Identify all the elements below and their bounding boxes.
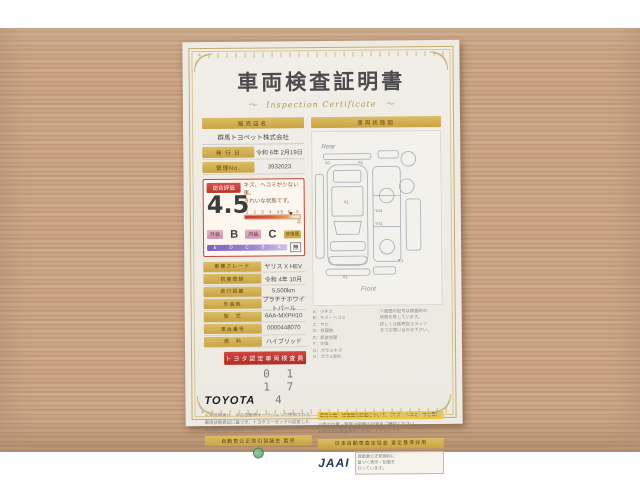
jaai-logo: JAAI [318,456,349,470]
spec-row-fuel: 燃 料 ハイブリッド [204,335,306,348]
right-column: 車両状態図 [311,116,443,407]
overall-rating-score: 4.5 [207,193,241,218]
certificate-number-stamp: 0 1 1 7 4 [255,368,307,407]
green-seal-icon [253,448,264,459]
rating-marker-icon [288,212,292,215]
legend-symbols: A：小キズ B：キズ・ヘコミ C：サビ D：修理跡 E：板金修理 F：交換 G：… [313,309,376,361]
corner-flourish-icon [430,392,452,414]
spec-value: 0000448070 [262,325,306,331]
certificate-subtitle: ～ Inspection Certificate ～ [198,98,445,111]
damage-marker: A1 [325,160,331,165]
inspector-banner: トヨタ認定車両検査員 [224,352,306,366]
spec-value: 5,500km [261,288,305,294]
wood-table-background: 車両検査証明書 ～ Inspection Certificate ～ 販売店名 … [0,28,640,452]
grade-scale-letter: D [223,245,239,251]
spec-row-model: 型 式 6AA-MXPH10 [204,310,306,323]
exterior-label: 外装 [207,230,223,239]
rating-scale-bar [244,214,301,219]
spec-label: 外装色 [204,299,262,310]
spec-label: 燃 料 [204,336,262,347]
spec-value: ハイブリッド [262,336,306,345]
manage-number-row: 管理No. 3932023 [202,161,304,175]
certificate-title: 車両検査証明書 [198,65,445,97]
damage-marker: Y41 [375,208,383,213]
spec-row-grade: 車種グレード ヤリス X HEV [203,260,305,273]
repair-history-value: 無 [290,242,301,252]
diagram-legend: A：小キズ B：キズ・ヘコミ C：サビ D：修理跡 E：板金修理 F：交換 G：… [313,308,443,361]
damage-marker: E1 [398,258,404,263]
legend-notes: ※図面の記号は検査時の 状態を表しています。 詳しくは販売店スタッフ までお問い… [380,308,443,360]
diagram-header-label: 車両状態図 [311,116,441,128]
exterior-grade: B [225,229,243,241]
rating-unit: 点 [244,219,301,225]
grade-scale-bar: E D C B A [207,244,287,251]
damage-marker: A1 [344,199,350,204]
spec-value: プラチナホワイトパール [262,294,306,312]
grade-scale-letter: C [239,244,255,250]
grade-scale-letter: A [271,244,287,250]
grade-row: 外装 B 内装 C 修復歴 [207,228,301,241]
spec-label: 型 式 [204,311,262,322]
damage-marker: A1 [358,160,364,165]
spec-label: 車台番号 [204,324,262,335]
overall-rating-box: 総合評価 4.5 キズ、ヘコミが少ない車。 きれいな状態です。 1 2 3 4 [203,178,306,257]
corner-flourish-icon [427,50,449,72]
dealer-header-label: 販売店名 [202,117,304,129]
vehicle-condition-diagram: Rear Front A1 A1 A1 Y41 Y41 A1 E1 [311,130,442,306]
footer-side-note: 自動車公正競規約に 基づく表示・記載を 行っています。 [354,451,444,475]
inspection-certificate-document: 車両検査証明書 ～ Inspection Certificate ～ 販売店名 … [182,40,462,426]
manage-number-label: 管理No. [202,162,254,173]
footer-right-note: ※傷の位置・程度は図面の記号をご確認ください。 ※評価点は検査時点の状態によるも… [318,421,444,435]
manage-number-value: 3932023 [254,164,304,170]
spec-row-color: 外装色 プラチナホワイトパール [204,298,306,311]
dealer-name: 群馬トヨペット株式会社 [202,131,304,145]
corner-flourish-icon [195,394,217,416]
spec-row-registration: 初度登録 令和 4年 10月 [203,273,305,286]
car-outline-drawing: Rear Front A1 A1 A1 Y41 Y41 A1 E1 [312,131,441,305]
left-column: 販売店名 群馬トヨペット株式会社 発 行 日 令和 6年 2月19日 管理No.… [202,117,307,407]
issue-date-row: 発 行 日 令和 6年 2月19日 [202,146,304,160]
corner-flourish-icon [192,52,214,74]
diagram-rear-label: Rear [321,143,336,150]
interior-label: 内装 [245,230,261,239]
fair-trade-council-bar: 自動車公正取引協議会 監修 [205,435,312,446]
spec-label: 車種グレード [203,261,261,272]
spec-label: 走行距離 [203,286,261,297]
issue-date-value: 令和 6年 2月19日 [254,147,304,156]
damage-marker: Y41 [375,221,383,226]
spec-row-chassis: 車台番号 0000448070 [204,323,306,336]
diagram-front-label: Front [361,286,376,293]
damage-marker: A1 [343,274,349,279]
grade-scale-letter: E [207,245,223,251]
repair-history-label: 修復歴 [284,230,302,238]
spec-value: 6AA-MXPH10 [262,313,306,319]
spec-value: 令和 4年 10月 [261,274,305,283]
grade-scale-row: E D C B A 無 [207,242,301,253]
jaai-standard-bar: 日本自動車査定協会 査定基準採用 [318,438,444,449]
footer-disclaimer: ※本証明書は、中古自動車オークションで使用される 車両状態表記に基づき、トヨタユ… [205,413,312,434]
rating-comment: キズ、ヘコミが少ない車。 きれいな状態です。 [244,182,301,206]
issue-date-label: 発 行 日 [202,147,254,158]
grade-scale-letter: B [255,244,271,250]
certificate-ornate-frame: 車両検査証明書 ～ Inspection Certificate ～ 販売店名 … [188,46,456,420]
spec-label: 初度登録 [203,274,261,285]
spec-value: ヤリス X HEV [261,261,305,270]
ornament-band-top [195,51,446,58]
vehicle-spec-table: 車種グレード ヤリス X HEV 初度登録 令和 4年 10月 走行距離 5,5… [203,260,306,348]
certificate-footer: ※本証明書は、中古自動車オークションで使用される 車両状態表記に基づき、トヨタユ… [201,411,449,476]
interior-grade: C [263,228,281,240]
